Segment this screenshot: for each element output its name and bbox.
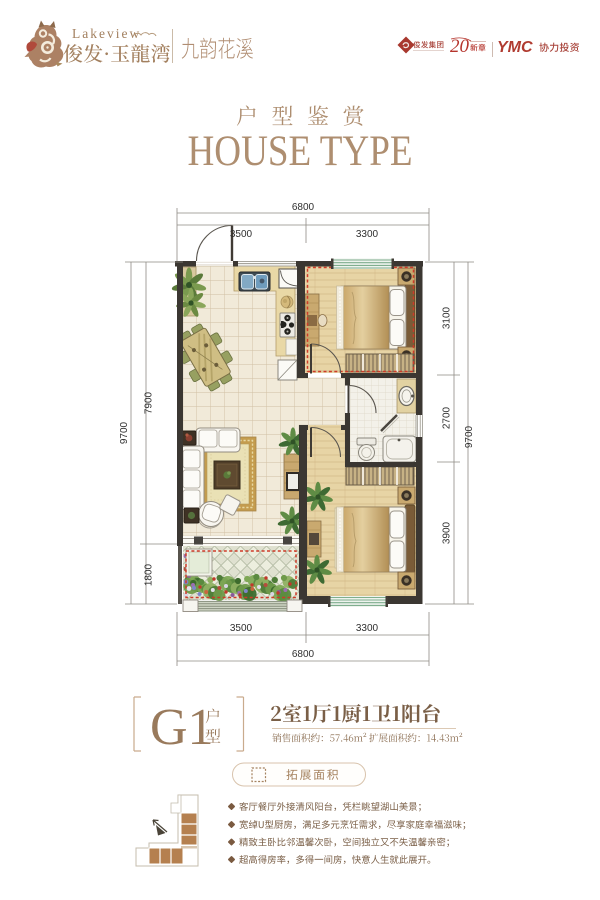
svg-text:Lakeview: Lakeview bbox=[72, 26, 141, 41]
svg-text:3500: 3500 bbox=[230, 229, 253, 240]
svg-text:3900: 3900 bbox=[442, 521, 453, 544]
svg-text:2700: 2700 bbox=[442, 406, 453, 429]
svg-text:6800: 6800 bbox=[292, 202, 315, 213]
svg-text:9700: 9700 bbox=[119, 421, 130, 444]
svg-text:6800: 6800 bbox=[292, 649, 315, 660]
svg-text:1800: 1800 bbox=[144, 563, 155, 586]
svg-text:7900: 7900 bbox=[144, 391, 155, 414]
svg-text:3300: 3300 bbox=[356, 623, 379, 634]
svg-text:3100: 3100 bbox=[442, 306, 453, 329]
svg-text:3500: 3500 bbox=[230, 623, 253, 634]
svg-text:G1: G1 bbox=[150, 699, 214, 756]
svg-text:YMC: YMC bbox=[497, 39, 533, 56]
svg-text:3300: 3300 bbox=[356, 229, 379, 240]
svg-text:9700: 9700 bbox=[464, 425, 475, 448]
svg-text:HOUSE TYPE: HOUSE TYPE bbox=[188, 128, 413, 175]
